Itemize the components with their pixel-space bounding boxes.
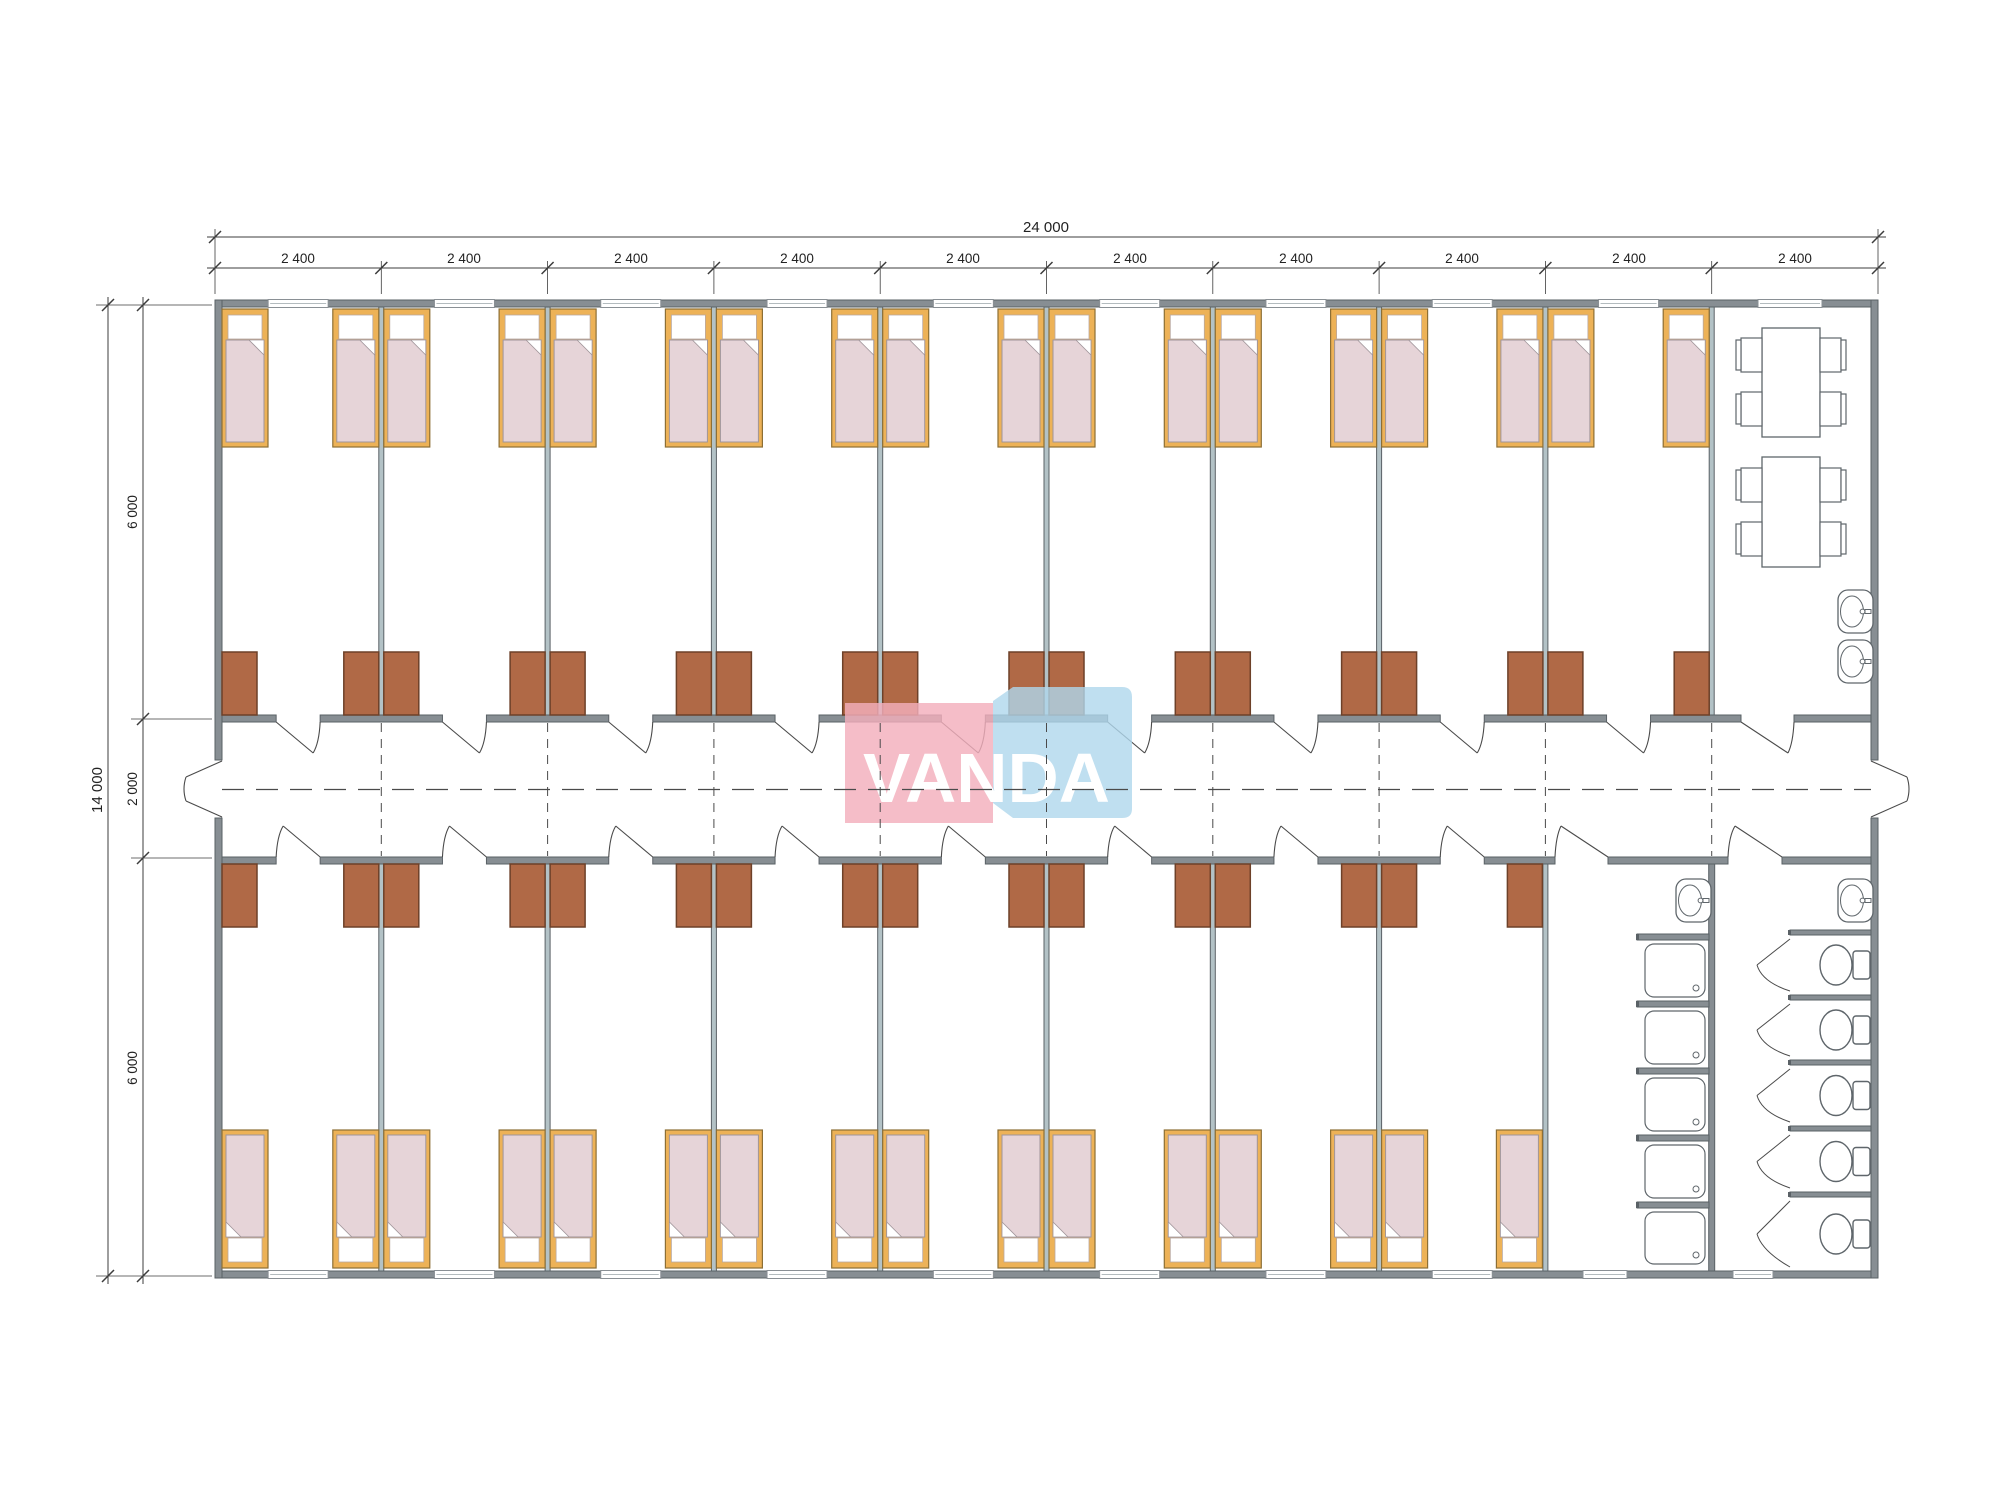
bed-pillow xyxy=(339,315,373,339)
shower-partition-cap xyxy=(1636,1202,1639,1208)
bed-pillow xyxy=(1337,1238,1371,1262)
room-door-leaf xyxy=(775,722,812,753)
shower-tray xyxy=(1645,1078,1705,1131)
bed-pillow xyxy=(390,1238,424,1262)
wardrobe xyxy=(1009,864,1044,927)
sink-faucet-knob xyxy=(1698,898,1703,903)
sink-faucet-knob xyxy=(1860,609,1865,614)
chair-seat xyxy=(1820,468,1841,502)
bed xyxy=(1497,309,1543,447)
toilet-stall-door-leaf xyxy=(1757,1135,1790,1162)
wardrobe xyxy=(1175,864,1210,927)
corridor-wall-south xyxy=(320,857,442,864)
dim-segment-label: 2 400 xyxy=(1113,251,1147,266)
toilet-stall-partition-cap xyxy=(1788,1192,1791,1197)
toilet-bowl xyxy=(1820,945,1852,985)
shower-drain xyxy=(1693,1252,1699,1258)
toilet-tank xyxy=(1853,1082,1870,1110)
bed xyxy=(883,1130,929,1268)
bed-blanket xyxy=(1386,340,1424,442)
bed xyxy=(1331,309,1377,447)
wardrobe xyxy=(510,652,545,715)
corridor-wall-north xyxy=(1794,715,1871,722)
wardrobe xyxy=(1674,652,1709,715)
toilet-stall-door-swing xyxy=(1757,1096,1790,1123)
room-door-swing xyxy=(646,722,653,753)
bed-pillow xyxy=(1055,315,1089,339)
toilet-stall-door-swing xyxy=(1757,1162,1790,1189)
bed-blanket xyxy=(1667,340,1705,442)
sink xyxy=(1676,879,1711,922)
chair xyxy=(1820,338,1846,372)
floor-plan-page: 24 000 2 400 2 400 2 400 2 400 2 400 2 4… xyxy=(0,0,2000,1508)
room-door-leaf xyxy=(442,722,479,753)
corridor-west-door-swing xyxy=(184,777,186,801)
wardrobe xyxy=(1342,864,1377,927)
bed xyxy=(1164,1130,1210,1268)
bed-pillow xyxy=(1554,315,1588,339)
bed xyxy=(333,309,379,447)
bed xyxy=(1496,1130,1542,1268)
bed-blanket xyxy=(720,340,758,442)
wardrobe xyxy=(716,864,751,927)
bed xyxy=(1215,1130,1261,1268)
room-door-swing xyxy=(1477,722,1484,753)
room-door-leaf xyxy=(1274,722,1311,753)
room-partition-wall xyxy=(1543,864,1548,1271)
shower-room-door-leaf xyxy=(1561,826,1608,857)
room-door-leaf xyxy=(609,722,646,753)
bed xyxy=(384,1130,430,1268)
wardrobe xyxy=(1382,864,1417,927)
watermark-layer: VANDA xyxy=(845,687,1132,823)
corridor-wall-south xyxy=(1152,857,1274,864)
corridor-wall-north xyxy=(486,715,608,722)
bed-pillow xyxy=(671,315,705,339)
toilet-room-door-swing xyxy=(1728,826,1735,857)
room-door-swing xyxy=(276,826,283,857)
room-door-swing xyxy=(775,826,782,857)
dining-table xyxy=(1762,457,1820,567)
bed-blanket xyxy=(1500,1135,1538,1237)
bed-pillow xyxy=(505,315,539,339)
bed-blanket xyxy=(1053,340,1091,442)
wardrobe xyxy=(222,864,257,927)
corridor-wall-north xyxy=(1484,715,1606,722)
dining-table xyxy=(1762,328,1820,437)
shower-tray xyxy=(1645,944,1705,997)
dim-segment-label: 2 400 xyxy=(1279,251,1313,266)
shower-drain xyxy=(1693,985,1699,991)
room-door-leaf xyxy=(948,826,985,857)
toilet-stall-partition-cap xyxy=(1788,1126,1791,1131)
chair xyxy=(1736,468,1762,502)
bed-pillow xyxy=(1669,315,1703,339)
bed-blanket xyxy=(836,340,874,442)
room-door-swing xyxy=(1274,826,1281,857)
wardrobe xyxy=(384,652,419,715)
corridor-west-door-leaf xyxy=(186,801,222,817)
corridor-wall-north xyxy=(1651,715,1741,722)
toilet-bowl xyxy=(1820,1214,1852,1254)
bed-blanket xyxy=(720,1135,758,1237)
sink-faucet xyxy=(1865,610,1871,614)
wardrobe xyxy=(1049,864,1084,927)
bed-pillow xyxy=(722,1238,756,1262)
bed-blanket xyxy=(1219,340,1257,442)
wardrobe xyxy=(1175,652,1210,715)
bed-blanket xyxy=(887,340,925,442)
toilet-stall-partition xyxy=(1790,1192,1871,1197)
corridor-wall-north xyxy=(320,715,442,722)
shower-partition-cap xyxy=(1636,934,1639,940)
corridor-wall-south xyxy=(1782,857,1871,864)
bed-blanket xyxy=(1552,340,1590,442)
bed xyxy=(1382,309,1428,447)
corridor-east-door-leaf xyxy=(1871,761,1907,777)
bed xyxy=(998,309,1044,447)
bed-pillow xyxy=(1221,315,1255,339)
bed xyxy=(665,1130,711,1268)
wardrobe xyxy=(716,652,751,715)
room-door-leaf xyxy=(616,826,653,857)
wardrobe xyxy=(550,652,585,715)
bed-pillow xyxy=(390,315,424,339)
bed-pillow xyxy=(1004,315,1038,339)
corridor-wall-south xyxy=(1318,857,1440,864)
bed xyxy=(1548,309,1594,447)
corridor-axes-layer xyxy=(222,723,1871,856)
bed xyxy=(1215,309,1261,447)
toilet xyxy=(1820,1076,1870,1116)
bed-pillow xyxy=(1388,1238,1422,1262)
bed-blanket xyxy=(388,1135,426,1237)
wardrobe xyxy=(550,864,585,927)
corridor-west-door-leaf xyxy=(186,761,222,777)
bed-blanket xyxy=(669,1135,707,1237)
dim-segment-label: 2 400 xyxy=(447,251,481,266)
watermark-text: VANDA xyxy=(863,739,1110,817)
room-door-swing xyxy=(609,826,616,857)
bed-pillow xyxy=(1004,1238,1038,1262)
toilet-tank xyxy=(1853,1220,1870,1248)
corridor-wall-south xyxy=(222,857,276,864)
bed xyxy=(1663,309,1709,447)
bed-pillow xyxy=(889,315,923,339)
wardrobe xyxy=(384,864,419,927)
bed-pillow xyxy=(228,1238,262,1262)
bed-pillow xyxy=(228,315,262,339)
bed-blanket xyxy=(226,340,264,442)
bed xyxy=(499,309,545,447)
room-door-swing xyxy=(1644,722,1651,753)
chair-back xyxy=(1736,340,1741,370)
chair-seat xyxy=(1741,522,1762,556)
bed-blanket xyxy=(1002,340,1040,442)
room-door-swing xyxy=(1311,722,1318,753)
bed-pillow xyxy=(339,1238,373,1262)
sink-faucet-knob xyxy=(1860,898,1865,903)
bed xyxy=(883,309,929,447)
chair xyxy=(1820,392,1846,426)
corridor-wall-north xyxy=(653,715,775,722)
toilet xyxy=(1820,1214,1870,1254)
bed-pillow xyxy=(671,1238,705,1262)
room-door-swing xyxy=(1440,826,1447,857)
dim-left-segment-label: 6 000 xyxy=(125,1051,140,1085)
room-door-leaf xyxy=(1607,722,1644,753)
corridor-wall-south xyxy=(1608,857,1728,864)
bed xyxy=(998,1130,1044,1268)
chair-back xyxy=(1736,470,1741,500)
sink-faucet xyxy=(1865,899,1871,903)
corridor-wall-south xyxy=(1484,857,1555,864)
sink xyxy=(1838,640,1873,683)
shower-partition xyxy=(1637,1001,1709,1007)
toilet xyxy=(1820,1010,1870,1050)
shower-drain xyxy=(1693,1119,1699,1125)
toilet xyxy=(1820,1142,1870,1182)
chair-back xyxy=(1841,470,1846,500)
toilet-stall-partition xyxy=(1790,1060,1871,1065)
bed-pillow xyxy=(1055,1238,1089,1262)
shower-tray xyxy=(1645,1145,1705,1198)
sink xyxy=(1838,879,1873,922)
wardrobe xyxy=(344,864,379,927)
toilet-stall-door-leaf xyxy=(1757,1069,1790,1096)
chair-seat xyxy=(1820,338,1841,372)
room-door-swing xyxy=(1145,722,1152,753)
room-door-leaf xyxy=(1447,826,1484,857)
dim-left-segment-label: 6 000 xyxy=(125,495,140,529)
chair xyxy=(1820,522,1846,556)
wardrobe xyxy=(1215,652,1250,715)
corridor-wall-south xyxy=(985,857,1107,864)
wardrobe xyxy=(1507,864,1542,927)
bed-pillow xyxy=(838,1238,872,1262)
bed-blanket xyxy=(1053,1135,1091,1237)
corridor-wall-north xyxy=(222,715,276,722)
room-door-leaf xyxy=(1115,826,1152,857)
wardrobe xyxy=(676,652,711,715)
shower-partition-cap xyxy=(1636,1135,1639,1141)
bed-pillow xyxy=(1337,315,1371,339)
chair xyxy=(1736,338,1762,372)
chair-back xyxy=(1736,524,1741,554)
toilet-stall-door-leaf xyxy=(1757,1201,1790,1234)
shower-partition-cap xyxy=(1636,1001,1639,1007)
toilet-bowl xyxy=(1820,1010,1852,1050)
bed-blanket xyxy=(887,1135,925,1237)
chair-back xyxy=(1841,524,1846,554)
room-door-swing xyxy=(941,826,948,857)
wardrobe xyxy=(1382,652,1417,715)
shower-partition xyxy=(1637,1068,1709,1074)
wardrobe xyxy=(344,652,379,715)
wardrobe xyxy=(843,864,878,927)
shower-drain xyxy=(1693,1052,1699,1058)
bed-pillow xyxy=(1503,315,1537,339)
chair-seat xyxy=(1741,338,1762,372)
chair-seat xyxy=(1741,468,1762,502)
bed xyxy=(1164,309,1210,447)
wardrobe xyxy=(883,864,918,927)
bed-blanket xyxy=(503,340,541,442)
chair-seat xyxy=(1741,392,1762,426)
bed xyxy=(716,1130,762,1268)
bed-blanket xyxy=(1386,1135,1424,1237)
bed xyxy=(1382,1130,1428,1268)
toilet-stall-door-swing xyxy=(1757,1234,1790,1267)
room-door-leaf xyxy=(283,826,320,857)
bed-pillow xyxy=(556,1238,590,1262)
chair-back xyxy=(1736,394,1741,424)
bed-blanket xyxy=(1219,1135,1257,1237)
room-door-swing xyxy=(313,722,320,753)
wardrobe xyxy=(1215,864,1250,927)
shower-partition xyxy=(1637,1202,1709,1208)
bed-pillow xyxy=(1388,315,1422,339)
shower-tray xyxy=(1645,1212,1705,1264)
wardrobe xyxy=(510,864,545,927)
shower-drain xyxy=(1693,1186,1699,1192)
toilet-stall-partition-cap xyxy=(1788,1060,1791,1065)
corridor-wall-north xyxy=(1152,715,1274,722)
bed xyxy=(1049,1130,1095,1268)
bed-blanket xyxy=(836,1135,874,1237)
bed xyxy=(1331,1130,1377,1268)
bed-pillow xyxy=(722,315,756,339)
bed-pillow xyxy=(556,315,590,339)
toilet-stall-partition-cap xyxy=(1788,930,1791,935)
toilet-tank xyxy=(1853,1016,1870,1044)
bed-blanket xyxy=(226,1135,264,1237)
wardrobe xyxy=(1548,652,1583,715)
wardrobe xyxy=(676,864,711,927)
bed-pillow xyxy=(1170,1238,1204,1262)
dim-total-width-label: 24 000 xyxy=(1023,219,1069,236)
corridor-wall-south xyxy=(653,857,775,864)
corridor-wall-south xyxy=(486,857,608,864)
chair xyxy=(1736,522,1762,556)
toilet-room-door-leaf xyxy=(1735,826,1782,857)
bed-blanket xyxy=(554,340,592,442)
bed-blanket xyxy=(1168,340,1206,442)
room-door-swing xyxy=(1108,826,1115,857)
corridor-wall-south xyxy=(819,857,941,864)
dim-left-segment-label: 2 000 xyxy=(125,772,140,806)
bed-blanket xyxy=(337,1135,375,1237)
shower-partition xyxy=(1637,934,1709,940)
bed xyxy=(832,1130,878,1268)
dim-segment-label: 2 400 xyxy=(1612,251,1646,266)
toilet-stall-door-swing xyxy=(1757,965,1790,991)
bed-pillow xyxy=(1502,1238,1536,1262)
room-door-leaf xyxy=(276,722,313,753)
toilet-stall-door-leaf xyxy=(1757,1004,1790,1030)
toilet xyxy=(1820,945,1870,985)
bed-blanket xyxy=(1335,1135,1373,1237)
toilet-bowl xyxy=(1820,1076,1852,1116)
exterior-wall-west xyxy=(215,300,222,760)
dim-total-height-label: 14 000 xyxy=(89,767,106,813)
bed-blanket xyxy=(1335,340,1373,442)
exterior-wall-west xyxy=(215,818,222,1278)
bed-pillow xyxy=(889,1238,923,1262)
toilet-tank xyxy=(1853,951,1870,979)
room-door-leaf xyxy=(1440,722,1477,753)
shower-partition xyxy=(1637,1135,1709,1141)
sink-faucet xyxy=(1865,660,1871,664)
room-door-swing xyxy=(479,722,486,753)
chair-back xyxy=(1841,394,1846,424)
bed xyxy=(333,1130,379,1268)
room-door-swing xyxy=(442,826,449,857)
bed-blanket xyxy=(503,1135,541,1237)
dim-segment-label: 2 400 xyxy=(1778,251,1812,266)
wardrobe xyxy=(222,652,257,715)
chair-back xyxy=(1841,340,1846,370)
bed xyxy=(1049,309,1095,447)
sink-faucet xyxy=(1703,899,1709,903)
washroom-divider-wall xyxy=(1709,864,1715,1271)
bed-blanket xyxy=(337,340,375,442)
sink-faucet-knob xyxy=(1860,659,1865,664)
toilet-stall-door-swing xyxy=(1757,1030,1790,1056)
dining-door-swing xyxy=(1788,722,1794,753)
toilet-stall-partition xyxy=(1790,995,1871,1000)
bed-blanket xyxy=(554,1135,592,1237)
chair xyxy=(1820,468,1846,502)
bed xyxy=(499,1130,545,1268)
toilet-tank xyxy=(1853,1148,1870,1176)
bed-blanket xyxy=(669,340,707,442)
chair xyxy=(1736,392,1762,426)
bed xyxy=(832,309,878,447)
bed xyxy=(222,1130,268,1268)
wardrobe xyxy=(1342,652,1377,715)
bed-pillow xyxy=(505,1238,539,1262)
corridor-east-door-swing xyxy=(1907,777,1909,801)
toilet-bowl xyxy=(1820,1142,1852,1182)
room-door-leaf xyxy=(449,826,486,857)
floor-plan-drawing: 24 000 2 400 2 400 2 400 2 400 2 400 2 4… xyxy=(0,0,2000,1508)
corridor-wall-north xyxy=(1318,715,1440,722)
chair-seat xyxy=(1820,392,1841,426)
room-door-swing xyxy=(812,722,819,753)
bed xyxy=(550,309,596,447)
bed-blanket xyxy=(388,340,426,442)
toilet-stall-partition xyxy=(1790,1126,1871,1131)
dining-door-leaf xyxy=(1741,722,1788,753)
chair-seat xyxy=(1820,522,1841,556)
sink xyxy=(1838,590,1873,633)
toilet-stall-door-leaf xyxy=(1757,939,1790,965)
room-door-leaf xyxy=(782,826,819,857)
dim-segment-label: 2 400 xyxy=(281,251,315,266)
dim-segment-label: 2 400 xyxy=(1445,251,1479,266)
toilet-stall-partition-cap xyxy=(1788,995,1791,1000)
dim-segment-label: 2 400 xyxy=(614,251,648,266)
bed-blanket xyxy=(1002,1135,1040,1237)
shower-partition-cap xyxy=(1636,1068,1639,1074)
dim-segment-label: 2 400 xyxy=(780,251,814,266)
bed xyxy=(716,309,762,447)
corridor-east-door-leaf xyxy=(1871,801,1907,817)
exterior-wall-east xyxy=(1871,300,1878,760)
dim-segment-label: 2 400 xyxy=(946,251,980,266)
toilet-stall-partition xyxy=(1790,930,1871,935)
